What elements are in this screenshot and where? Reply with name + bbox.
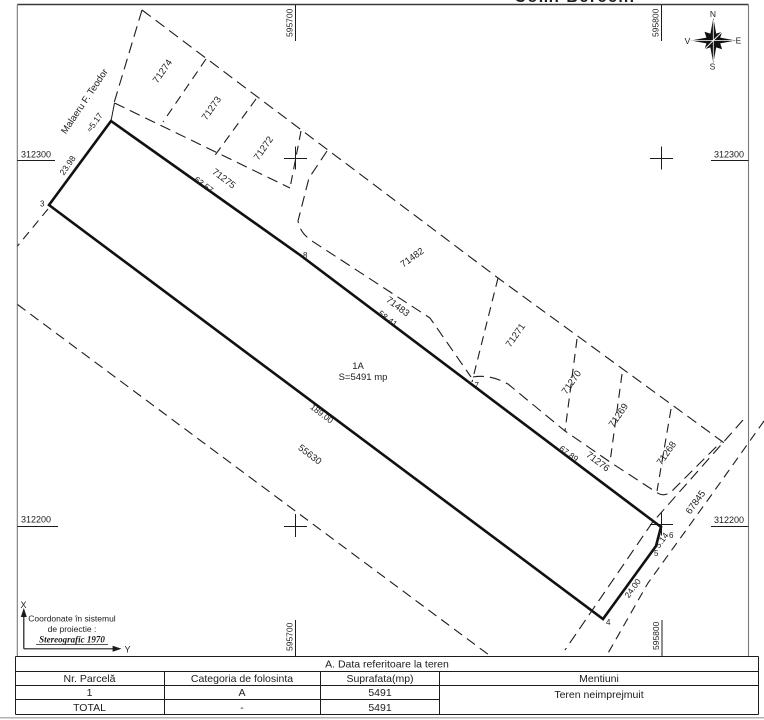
svg-text:595700: 595700: [285, 8, 295, 37]
svg-text:-: -: [240, 702, 244, 714]
svg-text:X: X: [21, 600, 27, 610]
svg-text:Categoria de folosinta: Categoria de folosinta: [191, 673, 293, 685]
svg-text:1A: 1A: [352, 361, 364, 372]
svg-text:Suprafata(mp): Suprafata(mp): [346, 673, 413, 685]
svg-text:5491: 5491: [368, 687, 392, 699]
svg-text:312300: 312300: [714, 150, 744, 160]
svg-text:312300: 312300: [21, 150, 51, 160]
svg-text:5491: 5491: [368, 702, 392, 714]
svg-text:595800: 595800: [651, 8, 661, 37]
svg-text:Stereografic 1970: Stereografic 1970: [39, 635, 105, 645]
svg-text:4: 4: [606, 618, 611, 627]
svg-text:Y: Y: [125, 645, 131, 655]
svg-text:312200: 312200: [21, 515, 51, 525]
svg-text:A: A: [238, 687, 245, 699]
svg-text:595800: 595800: [651, 621, 661, 650]
svg-text:595700: 595700: [285, 622, 295, 651]
svg-text:N: N: [710, 9, 716, 19]
svg-text:TOTAL: TOTAL: [73, 702, 106, 714]
svg-text:6: 6: [669, 531, 674, 540]
svg-text:312200: 312200: [714, 515, 744, 525]
svg-text:E: E: [736, 36, 742, 46]
svg-text:1: 1: [87, 687, 93, 699]
svg-text:8: 8: [303, 251, 308, 260]
svg-text:S=5491 mp: S=5491 mp: [339, 372, 388, 383]
svg-text:Teren neimprejmuit: Teren neimprejmuit: [554, 689, 643, 701]
svg-text:S: S: [710, 62, 716, 72]
svg-text:V: V: [685, 36, 691, 46]
svg-text:5: 5: [654, 549, 659, 558]
svg-text:3: 3: [40, 200, 45, 209]
svg-text:Nr. Parcelă: Nr. Parcelă: [64, 673, 116, 685]
svg-text:de proiectie :: de proiectie :: [48, 624, 97, 634]
svg-text:7: 7: [475, 381, 480, 390]
svg-text:Coordonate în sistemul: Coordonate în sistemul: [28, 614, 116, 624]
svg-text:Mentiuni: Mentiuni: [579, 673, 619, 685]
svg-text:A. Data referitoare la teren: A. Data referitoare la teren: [325, 659, 449, 671]
